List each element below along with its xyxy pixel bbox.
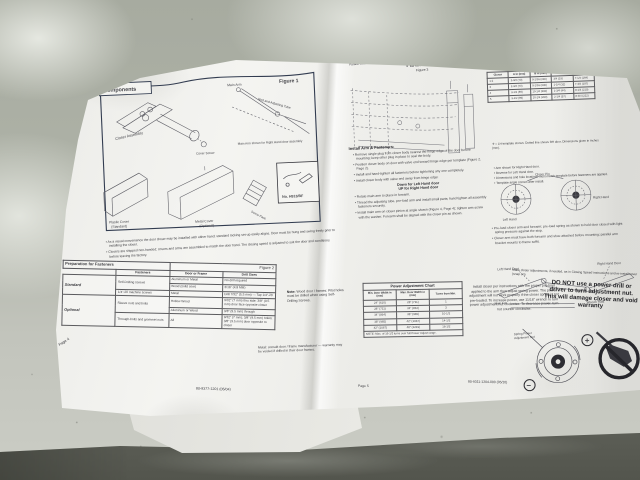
fastener-table-block: Preparation for Fasteners Figure 2 Faste… <box>61 260 280 331</box>
post-circle-bullets: Pre-load closer arm and forearm; pre-loa… <box>488 222 627 247</box>
group-optional: Optional <box>62 295 116 327</box>
minus-icon: − <box>524 380 535 391</box>
right-footer-doc: 80-9311-1204-000 (05/10) <box>468 380 507 385</box>
closer-assembly-label: Closer Assembly <box>115 131 144 141</box>
note-text: Wood door / frames: Pilot holes must be … <box>287 288 344 303</box>
arm-assembly-drawing <box>231 85 309 137</box>
plus-icon: + <box>582 335 593 346</box>
install-bullets-a: Remove single plug from closer body near… <box>349 147 486 184</box>
warning-text: DO NOT use a power drill or driver to tu… <box>542 280 639 313</box>
fastener-table: Preparation for Fasteners Figure 2 Faste… <box>61 260 276 331</box>
closer-assembly-drawing <box>116 100 207 150</box>
figure1-diagram: Components Figure 1 Closer Assembly <box>97 65 324 234</box>
dim-cell: 2-1/4 (57) <box>552 94 574 101</box>
screw-pack-label: Screw Pack <box>250 210 267 221</box>
cell: 9/32" (7 mm); 3/8" (9.5 mm) holes; 3/8" … <box>222 315 276 330</box>
dim-cell: 10-1/4 (260) <box>531 95 553 102</box>
photo-scene: Components Figure 1 Closer Assembly <box>0 0 640 480</box>
svg-text:−: − <box>526 381 531 390</box>
left-footer-doc: 80-9377-1201 (05/04) <box>196 387 231 392</box>
right-footer-page: Page 5 <box>358 384 369 388</box>
metal-cover-label2: (Optional) <box>199 223 214 228</box>
template-note: ✛ = LH template shown. Dotted line shows… <box>492 139 604 151</box>
svg-text:+: + <box>585 336 590 345</box>
dim-cell: 3-1/2 (89) <box>509 95 531 102</box>
power-chart-block: Power Adjustment Chart Min. Door Width i… <box>363 281 466 338</box>
piston-label: Cover Screw <box>196 151 215 156</box>
arm-note-label: Main Arm shown for Right Hand door assem… <box>238 139 303 146</box>
power-chart-table: Power Adjustment Chart Min. Door Width i… <box>363 281 464 338</box>
figure1-label: Figure 1 <box>279 78 299 85</box>
dim-cell: 5 <box>488 96 510 103</box>
closer-pin-caption: Closer Pin <box>535 172 550 177</box>
install-bullets-b: Rotate main arm to place in forearm.Thre… <box>351 189 488 220</box>
arm-right-label: Right Hand Door <box>597 261 622 266</box>
bullets-c-list: Pre-load closer arm and forearm; pre-loa… <box>488 222 627 246</box>
closer-pin-diagram: Closer Pin Left Hand Right Hand <box>487 168 615 229</box>
right-hand-label: Right Hand <box>593 195 609 200</box>
cell: Sleeve nuts and bolts <box>115 296 169 314</box>
plastic-cover-label2: (Standard) <box>111 224 127 229</box>
dimension-rows: 1-2 2-3/4 (70) 9-1/16 (230) 3/4 (19) 7-1… <box>487 75 595 103</box>
cell: Self-Drilling screws <box>116 276 170 290</box>
left-footer-page: Page 4 <box>58 337 70 347</box>
install-section: Install Arm & Fasteners: Remove single p… <box>348 140 487 221</box>
rod-tube-label: Rod and Adjusting Tube <box>258 97 292 110</box>
group-standard: Standard <box>62 274 116 295</box>
main-arm-label: Main Arm <box>227 83 242 88</box>
left-page: Components Figure 1 Closer Assembly <box>97 65 324 234</box>
left-hand-label: Left Hand <box>503 217 517 221</box>
metal-note: Metal: consult door / frame manufacturer… <box>258 342 346 354</box>
plastic-cover-drawing <box>103 173 149 217</box>
screw-pack-drawing <box>243 180 266 206</box>
no-drill-icon <box>596 332 639 378</box>
cell: All <box>168 314 222 329</box>
power-chart-rows: 24" (610) 28" (711) 1 28" (711) 34" (864… <box>363 298 463 331</box>
cell: Through-bolts and grommet nuts <box>115 313 169 328</box>
parts-box: No. H913/BF <box>277 161 320 203</box>
dim-cell: 8-3/4 (222) <box>573 93 595 100</box>
power-chart-note: NOTE: Max. of 16-1/2 turns over full Pow… <box>364 330 463 338</box>
wood-note: Note: Wood door / frames: Pilot holes mu… <box>287 288 345 303</box>
metal-cover-drawing <box>167 165 235 220</box>
